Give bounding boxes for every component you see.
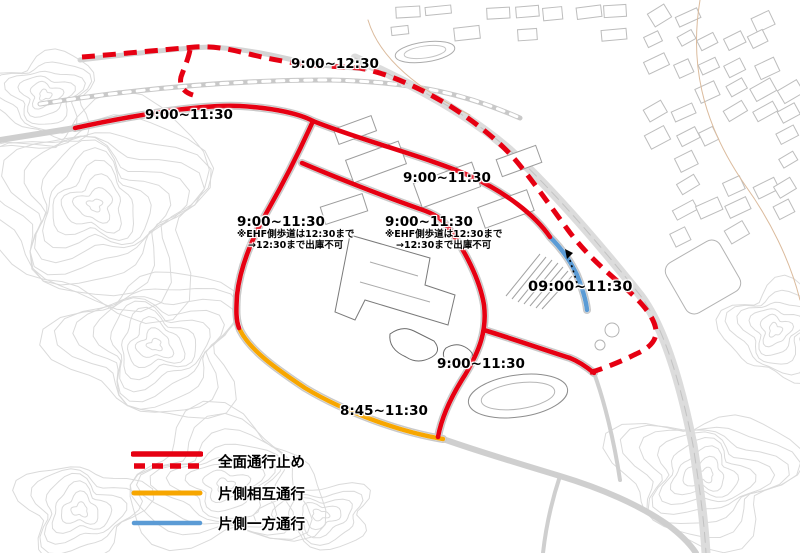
full-closure-line-icon [131,449,203,473]
oneway-line-icon [131,518,203,528]
alternating-time-label: 8:45~11:30 [340,404,428,418]
legend-label: 片側相互通行 [218,483,305,504]
map-canvas [0,0,800,553]
legend-item-alternating: 片側相互通行 [131,483,305,503]
closure-time-label: 9:00~11:30 [437,357,525,371]
closure-time-label: 9:00~11:30 [403,171,491,185]
alternating-line-icon [131,488,203,498]
closure-time-label-with-note: 9:00~11:30 ※EHF側歩道は12:30まで →12:30まで出庫不可 [237,215,354,251]
note-sidewalk: ※EHF側歩道は12:30まで [237,230,354,240]
legend-item-full-closure: 全面通行止め [131,447,305,475]
urban-blocks [391,4,800,247]
time-text: 9:00~11:30 [385,215,502,229]
legend-label: 全面通行止め [218,451,305,472]
legend-item-oneway: 片側一方通行 [131,513,305,533]
note-no-exit: →12:30まで出庫不可 [385,241,502,251]
oneway-time-label: 09:00~11:30 [528,280,632,295]
closure-time-label: 9:00~12:30 [291,57,379,71]
route-alternating-yellow [240,330,443,439]
note-no-exit: →12:30まで出庫不可 [237,241,354,251]
closure-time-label-with-note: 9:00~11:30 ※EHF側歩道は12:30まで →12:30まで出庫不可 [385,215,502,251]
time-text: 9:00~11:30 [237,215,354,229]
legend: 全面通行止め 片側相互通行 片側一方通行 [131,447,305,533]
legend-label: 片側一方通行 [218,513,305,534]
closure-time-label: 9:00~11:30 [145,108,233,122]
traffic-regulation-map: 9:00~12:30 9:00~11:30 9:00~11:30 9:00~11… [0,0,800,553]
note-sidewalk: ※EHF側歩道は12:30まで [385,230,502,240]
